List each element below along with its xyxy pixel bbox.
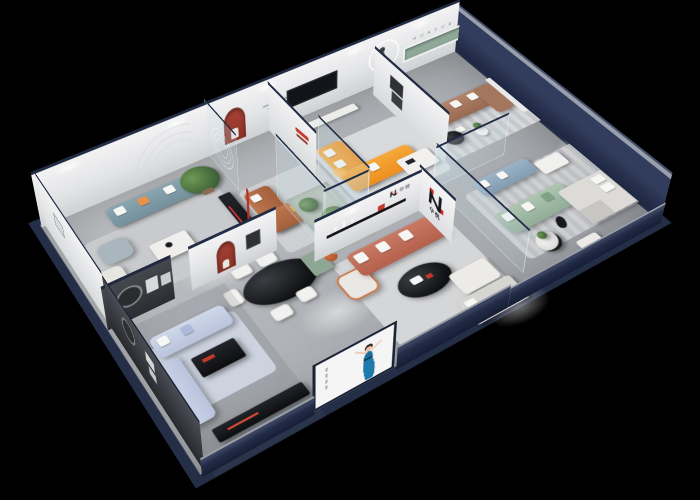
sofa-pillow (179, 323, 194, 335)
piped-armchair (333, 265, 383, 303)
sofa-pillow (353, 251, 370, 264)
sofa-pillow (156, 335, 171, 347)
brand-sign: 华悦 (390, 182, 411, 198)
dining-chair (268, 303, 295, 323)
huayue-monogram-icon (390, 188, 398, 197)
wall-frame (53, 213, 65, 239)
sofa-pillow (398, 229, 415, 241)
downlight-glow (53, 157, 83, 179)
dining-chair (221, 287, 246, 308)
brand-sign-text: 华悦 (399, 182, 411, 194)
poster-vertical-text-mark (325, 385, 327, 390)
armchair (94, 235, 136, 266)
table-vase (164, 241, 174, 248)
downlight-glow (344, 41, 367, 60)
red-arch-niche (216, 238, 236, 274)
black-oval-coffee-table (389, 255, 461, 305)
bust-sculpture (223, 258, 230, 269)
dining-chair (294, 285, 319, 303)
table-red-accent (202, 354, 216, 363)
perspective-scene: H U A Y U E 华悦 (0, 0, 700, 500)
showroom-stage: H U A Y U E 华悦 (28, 43, 671, 488)
wall-frame (145, 275, 158, 294)
poster-vertical-text-mark (326, 367, 328, 372)
sofa-pillow (374, 241, 391, 254)
table-red-book (425, 273, 434, 279)
table-plant (535, 230, 549, 240)
wall-frame (246, 229, 261, 250)
wall-tv (287, 70, 338, 109)
wall-frame (160, 271, 171, 286)
round-coffee-table (530, 228, 568, 255)
table-magazine (409, 275, 424, 286)
white-ottoman (448, 257, 503, 295)
arc-wall-emboss (123, 116, 193, 175)
poster-vertical-text-mark (325, 379, 327, 384)
black-coffee-table (190, 338, 246, 378)
render-canvas: H U A Y U E 华悦 (0, 0, 700, 500)
powder-blue-sofa (148, 304, 235, 360)
poster-vertical-text-mark (326, 373, 328, 378)
